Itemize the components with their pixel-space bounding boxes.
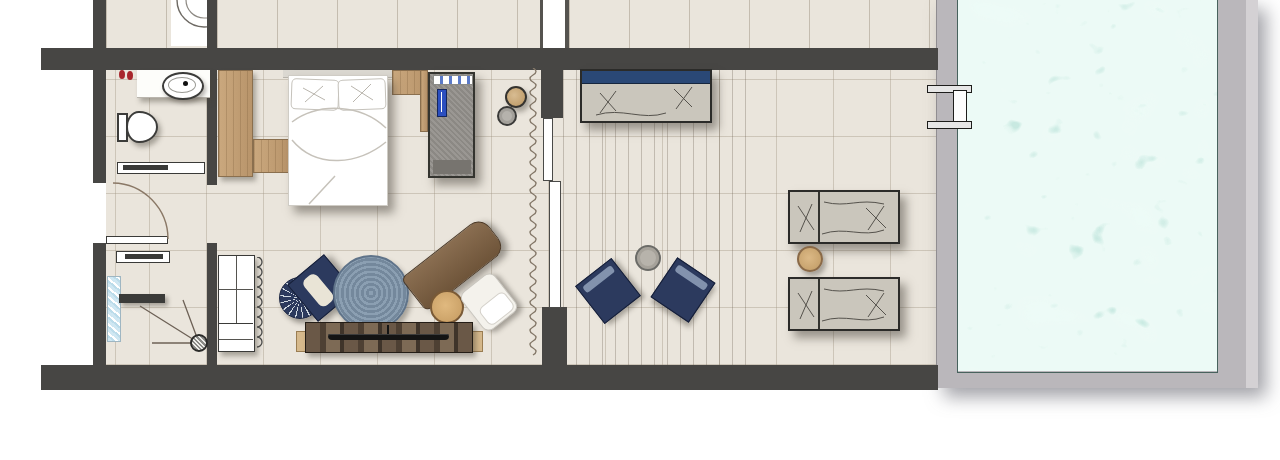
glazed-window-strip xyxy=(107,276,121,342)
wall-closet xyxy=(207,243,217,365)
sheer-curtain-icon xyxy=(527,68,539,358)
round-jute-rug xyxy=(333,255,409,331)
wall-terrace-upper xyxy=(541,70,563,118)
side-table-wood xyxy=(797,246,823,272)
garment-bag xyxy=(437,89,447,117)
pool-water xyxy=(957,0,1218,373)
sliding-glass-panel-2 xyxy=(549,181,561,308)
upper-gap-edge-left xyxy=(540,0,543,48)
wash-basin xyxy=(162,72,204,100)
stool-gray xyxy=(497,106,517,126)
water-caustics-icon xyxy=(958,0,1217,371)
shower-door-panel xyxy=(125,254,163,259)
hanger-scallops-icon xyxy=(254,257,266,355)
toiletry-bottle-2 xyxy=(127,71,133,80)
duvet-folds-icon xyxy=(289,76,389,207)
wall-stub-above-left xyxy=(93,0,106,48)
wall-stub-above-bath xyxy=(207,0,217,48)
garment-bag-zip xyxy=(441,92,442,112)
sun-lounger-1-stitches-icon xyxy=(790,192,898,242)
tall-gray-cabinet xyxy=(428,72,475,178)
upper-room-floor-middle xyxy=(217,0,540,48)
stool-wood xyxy=(505,86,527,108)
sliding-door-shower xyxy=(116,251,170,263)
bathroom-door-panel xyxy=(123,165,168,170)
wall-left-upper xyxy=(93,48,106,183)
faucet-icon xyxy=(183,81,188,86)
armchair-cushion xyxy=(301,272,336,309)
sliding-glass-panel-1 xyxy=(543,118,553,181)
open-wardrobe xyxy=(218,255,255,352)
sun-lounger-2-stitches-icon xyxy=(790,279,898,329)
pool-ladder-steps xyxy=(953,90,967,125)
pool xyxy=(936,0,1258,388)
wardrobe-shelf-3 xyxy=(219,339,253,340)
wall-left-lower xyxy=(93,243,106,365)
daybed-stitches-icon xyxy=(582,71,710,121)
door-swing-icon xyxy=(104,178,174,246)
wall-bottom xyxy=(41,365,938,390)
sun-lounger-1 xyxy=(788,190,900,244)
sun-lounger-2 xyxy=(788,277,900,331)
chaise-bolster xyxy=(430,290,464,324)
sideboard-endcap-right xyxy=(472,331,483,352)
wood-panel-left xyxy=(218,70,253,177)
upper-room-floor-right xyxy=(569,0,936,48)
pool-ladder-rail-bottom xyxy=(927,121,972,129)
wood-strip-right xyxy=(420,70,428,132)
wall-terrace-lower xyxy=(542,307,567,365)
wood-bench xyxy=(253,139,290,173)
tv-sideboard xyxy=(305,322,473,353)
pool-deck-outer-edge xyxy=(1246,0,1258,388)
floor-plan-canvas xyxy=(0,0,1280,460)
double-bed xyxy=(288,75,388,206)
side-table-gray xyxy=(635,245,661,271)
toiletry-bottle-1 xyxy=(119,70,125,79)
television xyxy=(328,334,449,340)
sliding-door-bathroom xyxy=(117,162,205,174)
upper-room-table-corner xyxy=(171,0,207,46)
wardrobe-shelf-2 xyxy=(219,323,253,324)
cabinet-base xyxy=(433,160,471,174)
wall-top xyxy=(41,48,938,70)
round-table-arc-icon xyxy=(171,0,207,46)
towel-stack xyxy=(433,75,473,85)
wardrobe-shelf-1 xyxy=(219,289,253,290)
shower-drain xyxy=(190,334,208,352)
outdoor-daybed xyxy=(580,69,712,123)
basin-inner-rim xyxy=(168,77,196,93)
